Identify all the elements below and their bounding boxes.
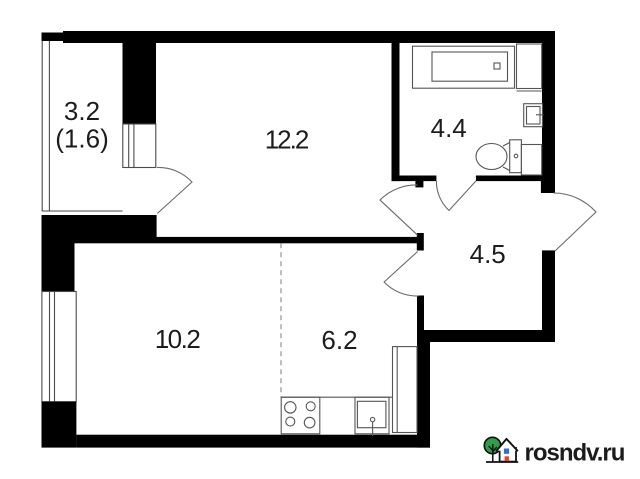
svg-text:3.2: 3.2 — [64, 96, 100, 126]
svg-text:(1.6): (1.6) — [55, 124, 108, 154]
svg-text:6.2: 6.2 — [321, 325, 357, 355]
svg-text:rosndv.ru: rosndv.ru — [525, 440, 625, 467]
svg-text:4.5: 4.5 — [470, 239, 506, 269]
svg-text:12.2: 12.2 — [265, 124, 309, 154]
svg-text:4.4: 4.4 — [431, 113, 467, 143]
svg-text:10.2: 10.2 — [155, 324, 201, 354]
